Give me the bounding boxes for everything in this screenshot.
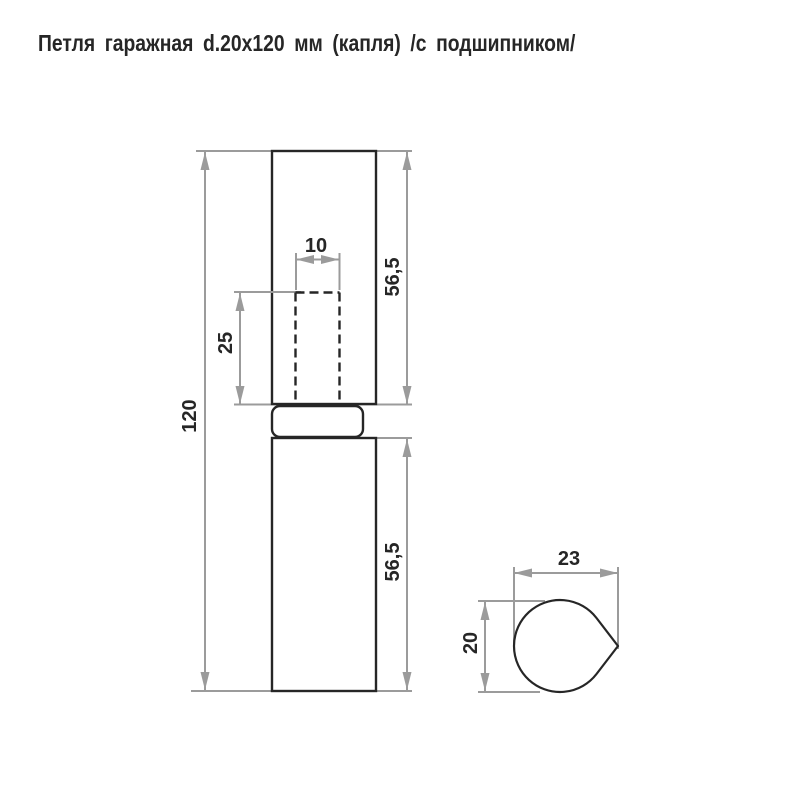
arrow-down-56-5-lower [403,672,412,690]
teardrop-section-outline [514,600,618,692]
dim-label-20: 20 [460,632,482,654]
dim-label-10: 10 [305,235,327,257]
arrow-up-25 [236,293,245,311]
arrow-up-56-5-lower [403,439,412,457]
arrow-up-56-5-upper [403,152,412,170]
drawing-canvas: Петля гаражная d.20x120 мм (капля) /с по… [0,0,800,800]
arrow-down-56-5-upper [403,386,412,404]
lower-leaf-outline [272,438,376,691]
dim-label-56-5-upper: 56,5 [382,258,404,297]
dim-label-23: 23 [558,548,580,570]
technical-drawing-svg: 120 56,5 56,5 25 10 23 20 [0,0,800,800]
arrow-left-23 [514,569,532,578]
arrow-down-120 [201,672,210,690]
dim-label-120: 120 [179,399,201,432]
dim-label-25: 25 [215,332,237,354]
dim-label-56-5-lower: 56,5 [382,543,404,582]
arrow-up-20 [481,602,490,620]
hinge-front-view [272,151,376,691]
upper-leaf-outline [272,151,376,404]
arrow-down-20 [481,673,490,691]
arrow-right-23 [600,569,618,578]
arrow-up-120 [201,152,210,170]
arrow-down-25 [236,386,245,404]
bearing-outline [272,406,363,437]
